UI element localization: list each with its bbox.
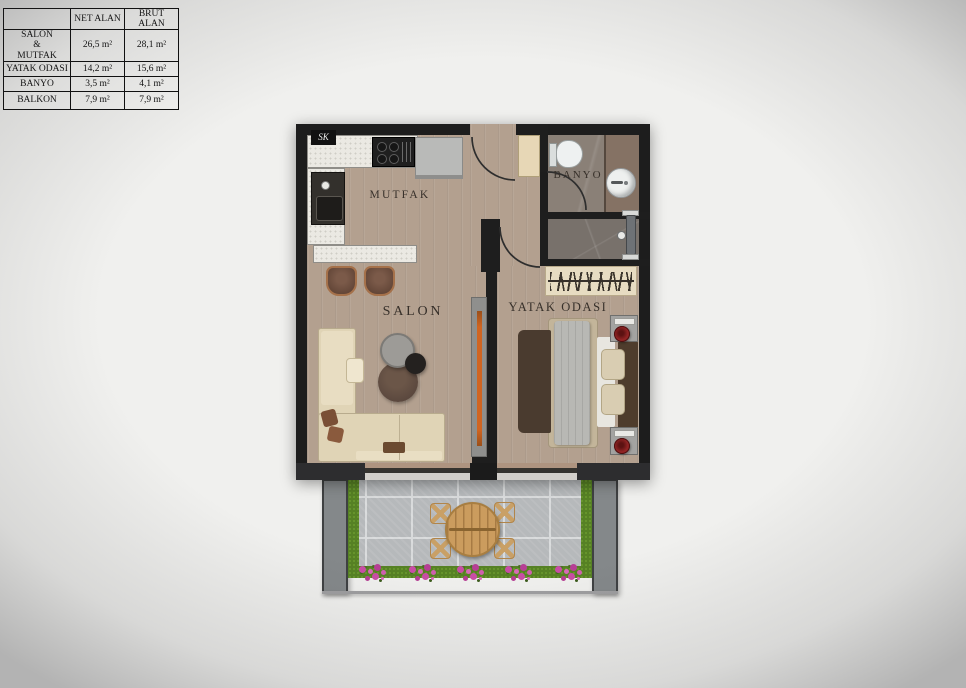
stove-burner-icon [389, 154, 399, 164]
book [614, 318, 635, 325]
flower-cluster [501, 560, 535, 582]
area-table: NET ALAN BRÜT ALAN SALON & MUTFAK 26,5 m… [3, 8, 179, 110]
drain-icon [624, 181, 628, 185]
net-area-cell: 14,2 m² [71, 61, 125, 76]
table-row: BALKON 7,9 m² 7,9 m² [4, 91, 179, 109]
fireplace-accent [477, 311, 482, 446]
door-leaf [626, 215, 636, 255]
gross-area-cell: 7,9 m² [125, 91, 179, 109]
door-rail-bottom [622, 254, 639, 260]
balcony-table-seam [449, 528, 496, 531]
wall-bathroom-left-upper [540, 124, 548, 172]
table-row: SALON & MUTFAK 26,5 m² 28,1 m² [4, 30, 179, 62]
stove-burner-icon [389, 142, 399, 152]
balcony-door [470, 463, 497, 480]
balcony-wall-left [322, 479, 348, 593]
faucet-icon [321, 181, 330, 190]
gross-area-cell: 15,6 m² [125, 61, 179, 76]
bar-stool [326, 266, 357, 296]
door-handle-icon [617, 231, 626, 240]
net-area-cell: 3,5 m² [71, 76, 125, 91]
toilet-icon [549, 140, 585, 169]
bed-pillow [601, 349, 625, 380]
bedroom-window [497, 463, 577, 480]
net-area-cell: 26,5 m² [71, 30, 125, 62]
stove-grill-icon [402, 142, 413, 162]
flower-cluster [355, 560, 389, 582]
sofa-pillow [327, 426, 345, 444]
facade-corner-right [577, 463, 650, 480]
flower-pot-icon [614, 438, 630, 454]
bed-duvet [554, 321, 590, 445]
nightstand [610, 427, 638, 455]
net-area-cell: 7,9 m² [71, 91, 125, 109]
gross-area-cell: 4,1 m² [125, 76, 179, 91]
faucet-icon [611, 181, 623, 184]
fridge [415, 137, 463, 179]
flower-cluster [551, 560, 585, 582]
flower-cluster [453, 560, 487, 582]
bed-throw [518, 330, 551, 433]
wardrobe [545, 266, 637, 296]
brut-alan-header: BRÜT ALAN [125, 9, 179, 30]
book [614, 430, 635, 437]
net-alan-header: NET ALAN [71, 9, 125, 30]
salon-window [365, 463, 470, 480]
armrest-table [346, 358, 364, 383]
room-name-cell: YATAK ODASI [4, 61, 71, 76]
bar-stool [364, 266, 395, 296]
stove-icon [372, 137, 415, 167]
balcony-shadow-line [322, 591, 618, 594]
living-room-label: SALON [353, 304, 473, 320]
shaft-label: SK [318, 132, 329, 142]
hall-door [617, 207, 639, 262]
flower-cluster [405, 560, 439, 582]
entrance-threshold [470, 124, 516, 135]
wall-salon-bedroom-divider [486, 272, 497, 463]
flower-pot-icon [614, 326, 630, 342]
table-header-row: NET ALAN BRÜT ALAN [4, 9, 179, 30]
sink-basin-icon [316, 196, 343, 221]
room-name-cell: BANYO [4, 76, 71, 91]
facade-corner-left [296, 463, 365, 480]
toilet-bowl [556, 140, 583, 168]
breakfast-bar [313, 245, 417, 263]
room-name-cell: SALON & MUTFAK [4, 30, 71, 62]
shaft-box: SK [311, 130, 336, 145]
table-row: BANYO 3,5 m² 4,1 m² [4, 76, 179, 91]
bed-pillow [601, 384, 625, 415]
sofa-seam [399, 415, 400, 460]
nightstand [610, 315, 638, 342]
wardrobe-rod-icon [548, 280, 634, 282]
sofa-tray [383, 442, 405, 453]
table-row: YATAK ODASI 14,2 m² 15,6 m² [4, 61, 179, 76]
stove-burner-icon [377, 154, 387, 164]
stove-burner-icon [377, 142, 387, 152]
room-name-cell: BALKON [4, 91, 71, 109]
kitchen-label: MUTFAK [340, 189, 460, 201]
bedroom-label: YATAK ODASI [498, 300, 618, 315]
wall-divider-stub [481, 219, 500, 272]
coffee-table-black [405, 353, 426, 374]
floor-plan-page: SK [0, 0, 966, 688]
bathroom-label: BANYO [528, 169, 628, 181]
balcony-wall-right [592, 479, 618, 593]
gross-area-cell: 28,1 m² [125, 30, 179, 62]
corner-header-cell [4, 9, 71, 30]
